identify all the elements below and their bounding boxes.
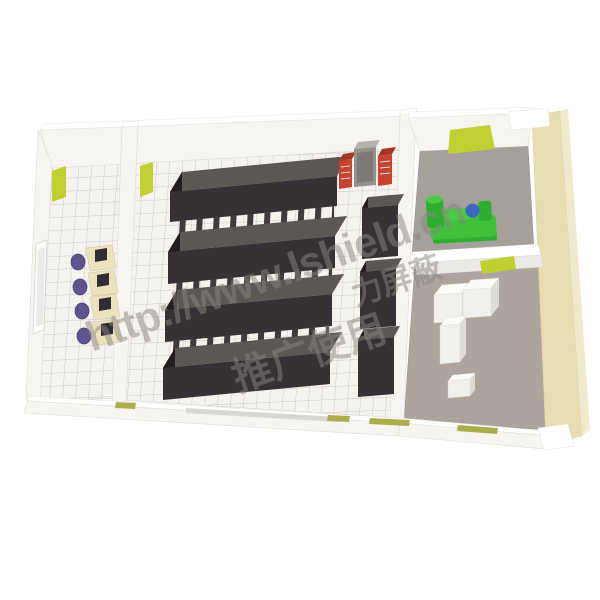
floorplan-3d-rendering: http://www.lshield.cn 力屏蔽 推广使用: [0, 0, 600, 600]
generator-post: [478, 201, 492, 222]
accent-panel-left-room: [52, 166, 66, 202]
front-corner-cap: [538, 424, 574, 450]
chair: [73, 279, 87, 295]
monitor: [95, 248, 107, 262]
chair: [71, 254, 85, 270]
power-cabinet-3: [440, 316, 466, 364]
power-cabinet-4: [448, 373, 475, 398]
front-accent-2: [327, 415, 350, 422]
accent-panel-server-room: [140, 162, 153, 197]
power-cabinet-2: [463, 278, 499, 318]
monitor: [97, 273, 109, 287]
right-corner-cap-top: [508, 108, 550, 130]
divider-wall-left-top: [122, 121, 139, 127]
front-accent-1: [115, 402, 136, 409]
floorplan-scene: http://www.lshield.cn 力屏蔽 推广使用: [0, 0, 600, 600]
